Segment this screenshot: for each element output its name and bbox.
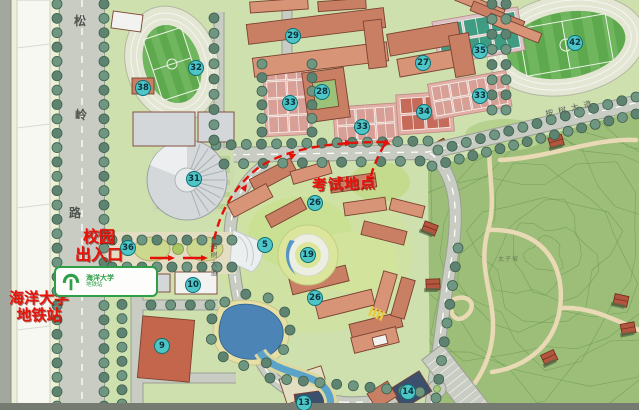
marker-19-15: 19: [300, 247, 316, 263]
marker-42-5: 42: [567, 35, 583, 51]
metro-sign-line2: 地铁站: [86, 282, 114, 289]
hill-hut: [424, 279, 440, 293]
roundabout-island: [434, 386, 441, 393]
road-name-songling-2: 岭: [75, 106, 87, 123]
west-edge-strip: [0, 0, 11, 410]
marker-31-11: 31: [186, 171, 202, 187]
marker-27-3: 27: [415, 55, 431, 71]
south-edge-road: [0, 403, 639, 410]
campus-entrance-note-line1: 校园: [70, 228, 128, 246]
campus-map: 松 岭 路 桉树大道 榕树大道 太子坡 考试地点 校园 出入口 海洋大学 地铁站…: [0, 0, 639, 410]
marker-10-17: 10: [185, 277, 201, 293]
hill-place-label: 太子坡: [498, 254, 519, 263]
marker-33-6: 33: [282, 95, 298, 111]
exam-site-note: 考试地点: [312, 175, 377, 194]
road-name-songling-1: 松: [74, 12, 86, 29]
building: [133, 112, 195, 146]
marker-9-18: 9: [154, 338, 170, 354]
marker-38-0: 38: [135, 80, 151, 96]
marker-26-16: 26: [307, 290, 323, 306]
metro-station-note-line2: 地铁站: [2, 307, 76, 324]
marker-33-10: 33: [472, 88, 488, 104]
metro-station-sign: 海洋大学 地铁站: [54, 266, 158, 297]
road-name-songling-3: 路: [69, 204, 81, 221]
marker-35-4: 35: [472, 43, 488, 59]
marker-14-20: 14: [400, 384, 416, 400]
metro-logo-icon: [60, 271, 82, 293]
marker-13-19: 13: [296, 395, 312, 410]
road-name-south-avenue: 榕树大道: [209, 242, 219, 290]
marker-33-8: 33: [354, 119, 370, 135]
marker-29-2: 29: [285, 28, 301, 44]
marker-5-14: 5: [257, 237, 273, 253]
building: [111, 11, 143, 32]
entrance-fountain: [173, 244, 184, 255]
marker-28-7: 28: [314, 84, 330, 100]
marker-36-12: 36: [120, 240, 136, 256]
marker-32-1: 32: [188, 60, 204, 76]
metro-sign-text: 海洋大学 地铁站: [86, 274, 114, 289]
marker-26-13: 26: [307, 195, 323, 211]
marker-34-9: 34: [416, 104, 432, 120]
